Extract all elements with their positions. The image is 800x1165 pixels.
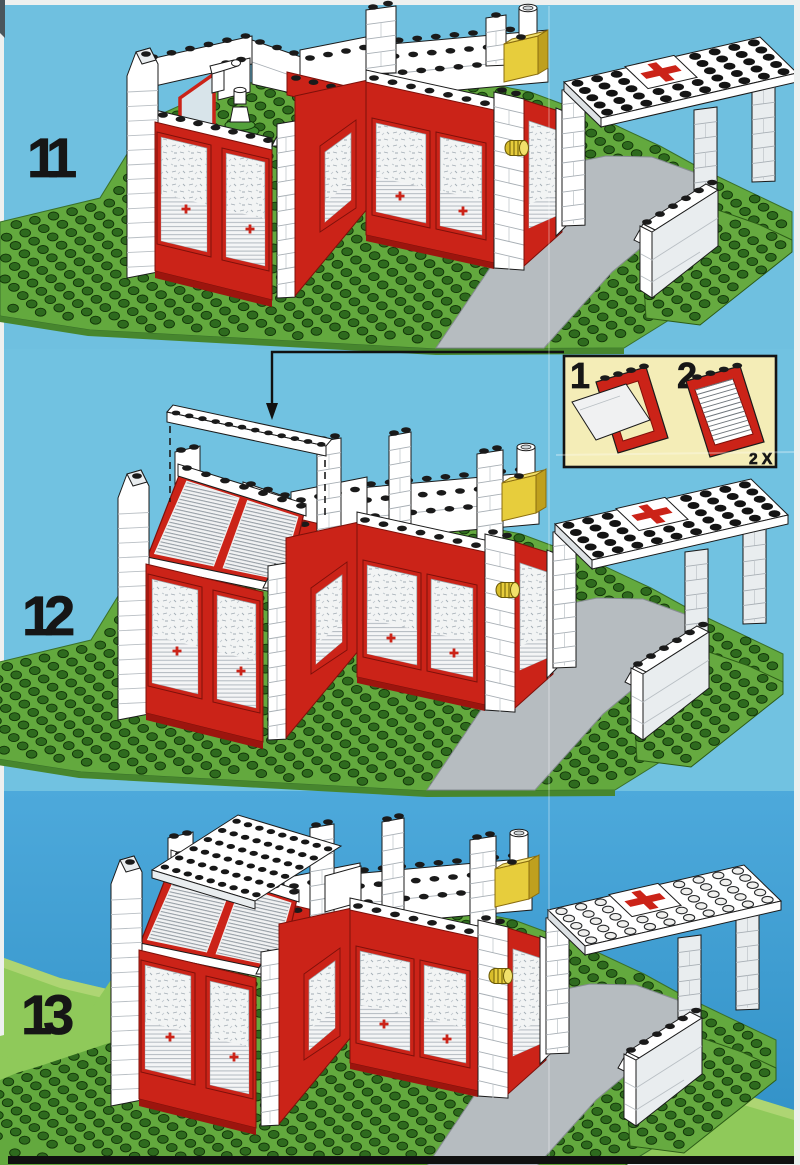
svg-text:12: 12: [22, 584, 73, 647]
svg-text:1: 1: [570, 355, 590, 396]
svg-text:2 X: 2 X: [749, 451, 773, 468]
